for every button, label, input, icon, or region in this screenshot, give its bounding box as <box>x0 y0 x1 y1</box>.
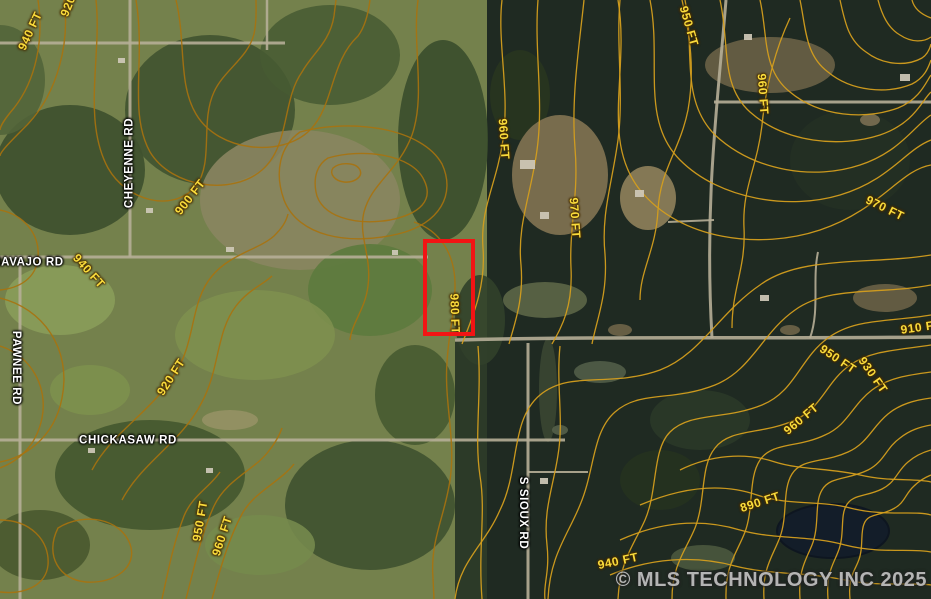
attribution-watermark: © MLS TECHNOLOGY INC 2025 <box>616 569 927 592</box>
satellite-map-canvas[interactable]: 940 FT 920 900 FT 940 FT 920 FT 950 FT 9… <box>0 0 931 599</box>
parcel-highlight-rectangle <box>423 239 475 336</box>
